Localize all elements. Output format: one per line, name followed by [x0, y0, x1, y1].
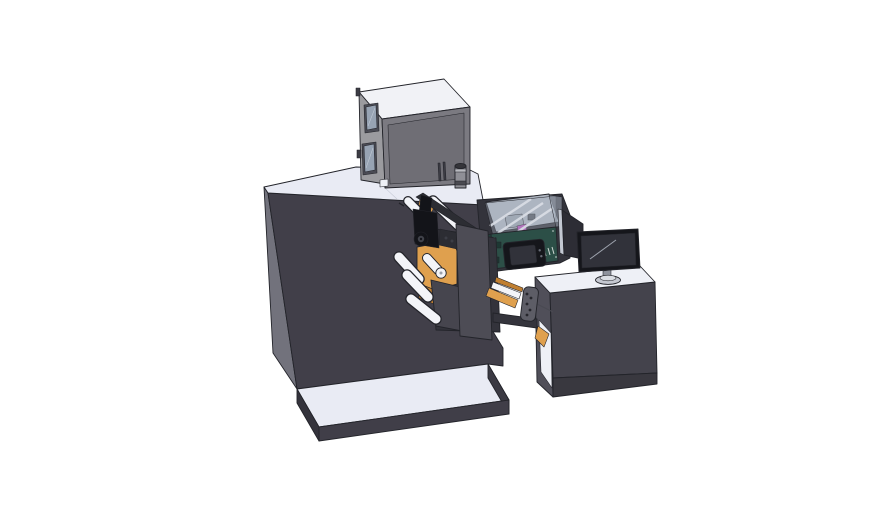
- roller-end-dot: [440, 272, 443, 275]
- exhaust-cylinder: [455, 163, 466, 188]
- touchscreen-screen: [509, 245, 537, 266]
- engine-box-inset-panel: [388, 113, 464, 184]
- engine-box-window-upper: [364, 103, 379, 133]
- touchscreen-display: [503, 239, 547, 270]
- head-gear-hub: [420, 238, 422, 240]
- engine-box-corner-plate: [380, 179, 388, 187]
- cad-render-stage: [0, 0, 888, 522]
- print-engine-box: [356, 79, 470, 188]
- monitor-base-top: [600, 275, 616, 281]
- cylinder-band: [455, 181, 466, 185]
- operator-desk: [535, 266, 657, 397]
- machine-render-svg: [0, 0, 888, 522]
- cylinder-cap: [455, 163, 466, 168]
- machine-render: [264, 79, 657, 441]
- monitor-screen: [581, 233, 636, 268]
- desk-front-face: [550, 282, 657, 378]
- cylinder-ring: [455, 169, 466, 172]
- front-plate: [456, 224, 492, 340]
- engine-box-window-lower: [362, 142, 377, 175]
